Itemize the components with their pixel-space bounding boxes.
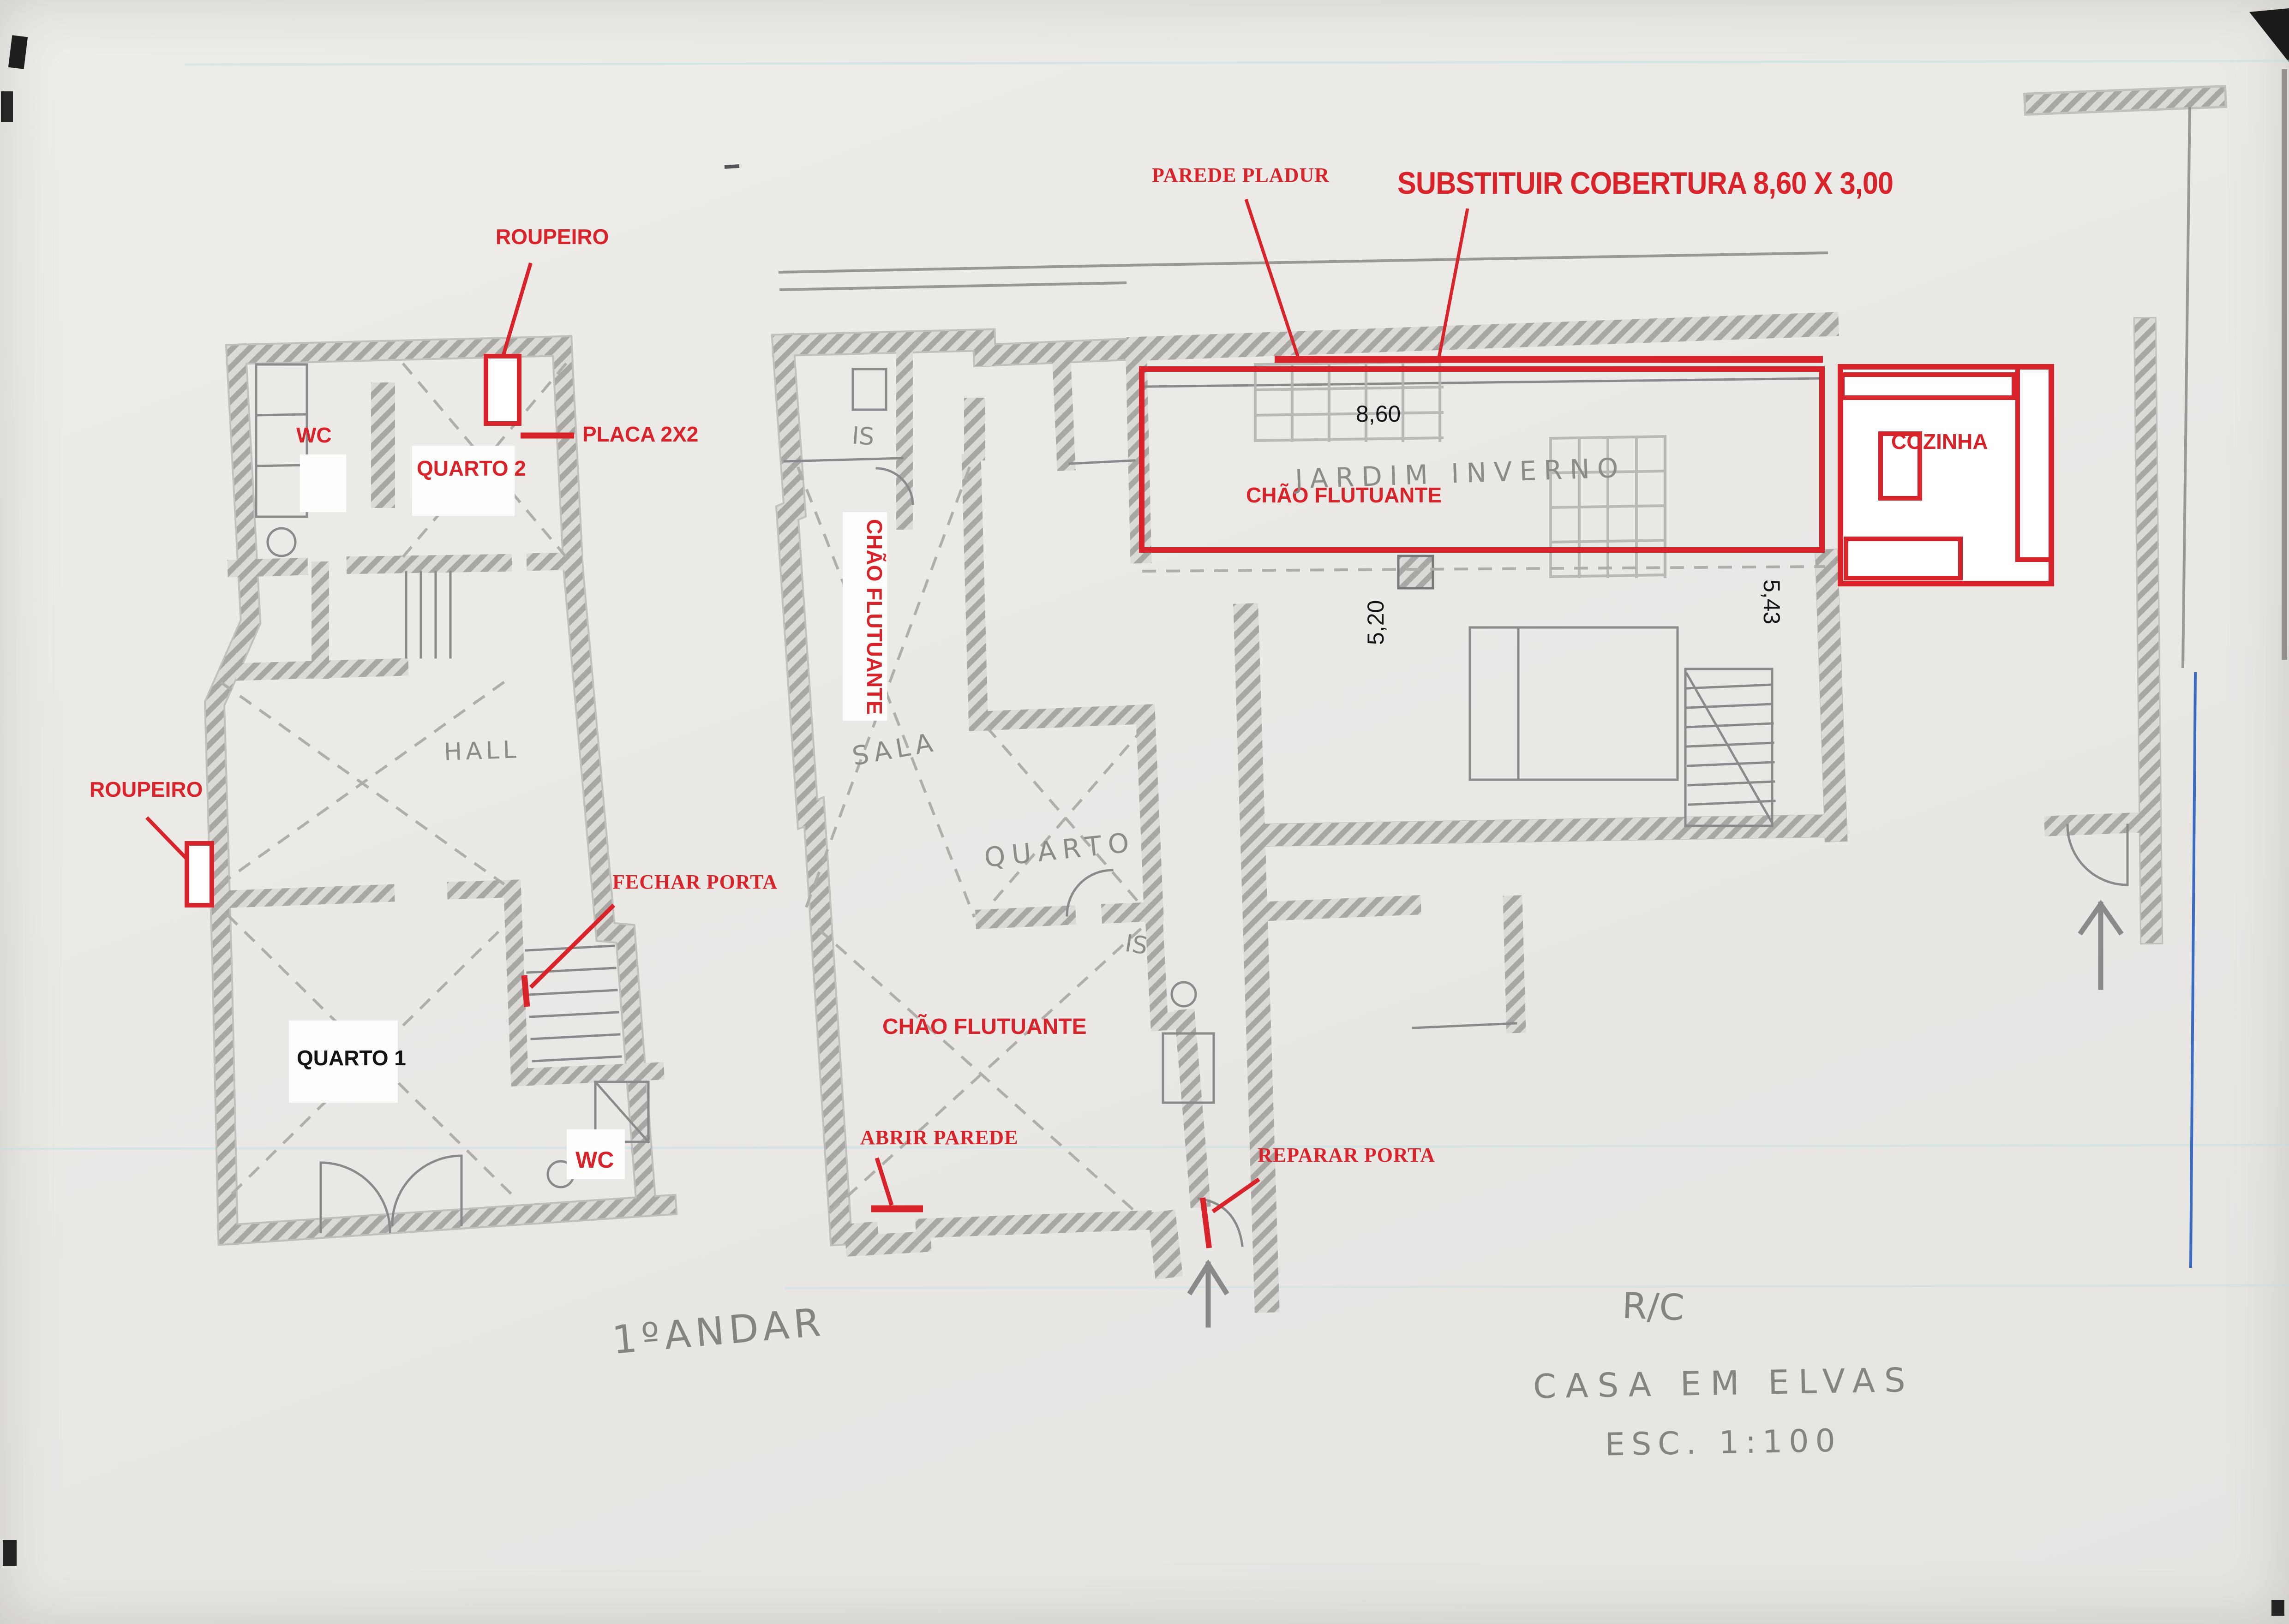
chao-flutuante-middle-label: CHÃO FLUTUANTE (882, 1014, 1087, 1039)
roupeiro-top-label: ROUPEIRO (496, 224, 609, 249)
fechar-porta-tick (524, 975, 527, 1007)
roupeiro-top-box (486, 356, 519, 424)
dim-860-label: 8,60 (1356, 400, 1401, 427)
substituir-cobertura-label: SUBSTITUIR COBERTURA 8,60 X 3,00 (1397, 165, 1893, 201)
chao-flutuante-vertical-label: CHÃO FLUTUANTE (862, 519, 887, 715)
entrance-arrow-icons (1191, 904, 2120, 1325)
is-lower-label: IS (1123, 930, 1150, 961)
is-upper-label: IS (851, 422, 875, 451)
abrir-parede-leader (877, 1158, 892, 1205)
dim-520-label: 5,20 (1362, 600, 1389, 645)
white-patch-wc-upper (300, 454, 346, 512)
wc-upper-label: WC (296, 423, 332, 448)
scanned-plan-page: ROUPEIRO WC QUARTO 2 PLACA 2X2 ROUPEIRO … (0, 0, 2289, 1624)
fechar-porta-label: FECHAR PORTA (612, 870, 778, 894)
pencil-sketch-layer (0, 0, 2289, 1624)
roupeiro-left-box (187, 843, 212, 905)
floor-right-title: R/C (1621, 1285, 1685, 1329)
cozinha-diagram (1840, 367, 2051, 584)
hall-label: HALL (443, 736, 521, 766)
reparar-porta-label: REPARAR PORTA (1258, 1143, 1435, 1167)
quarto2-label: QUARTO 2 (417, 456, 526, 481)
project-title: CASA EM ELVAS (1533, 1361, 1915, 1406)
scale-label: ESC. 1:100 (1605, 1423, 1842, 1463)
abrir-parede-label: ABRIR PAREDE (860, 1126, 1018, 1149)
roupeiro-left-leader (147, 818, 187, 859)
parede-pladur-label: PAREDE PLADUR (1152, 163, 1330, 187)
quarto1-label: QUARTO 1 (297, 1045, 406, 1070)
dim-543-label: 5,43 (1758, 579, 1785, 624)
roupeiro-left-label: ROUPEIRO (90, 777, 203, 802)
placa-label: PLACA 2X2 (582, 422, 698, 447)
cozinha-label: COZINHA (1891, 429, 1988, 454)
wc-lower-label: WC (575, 1146, 614, 1173)
